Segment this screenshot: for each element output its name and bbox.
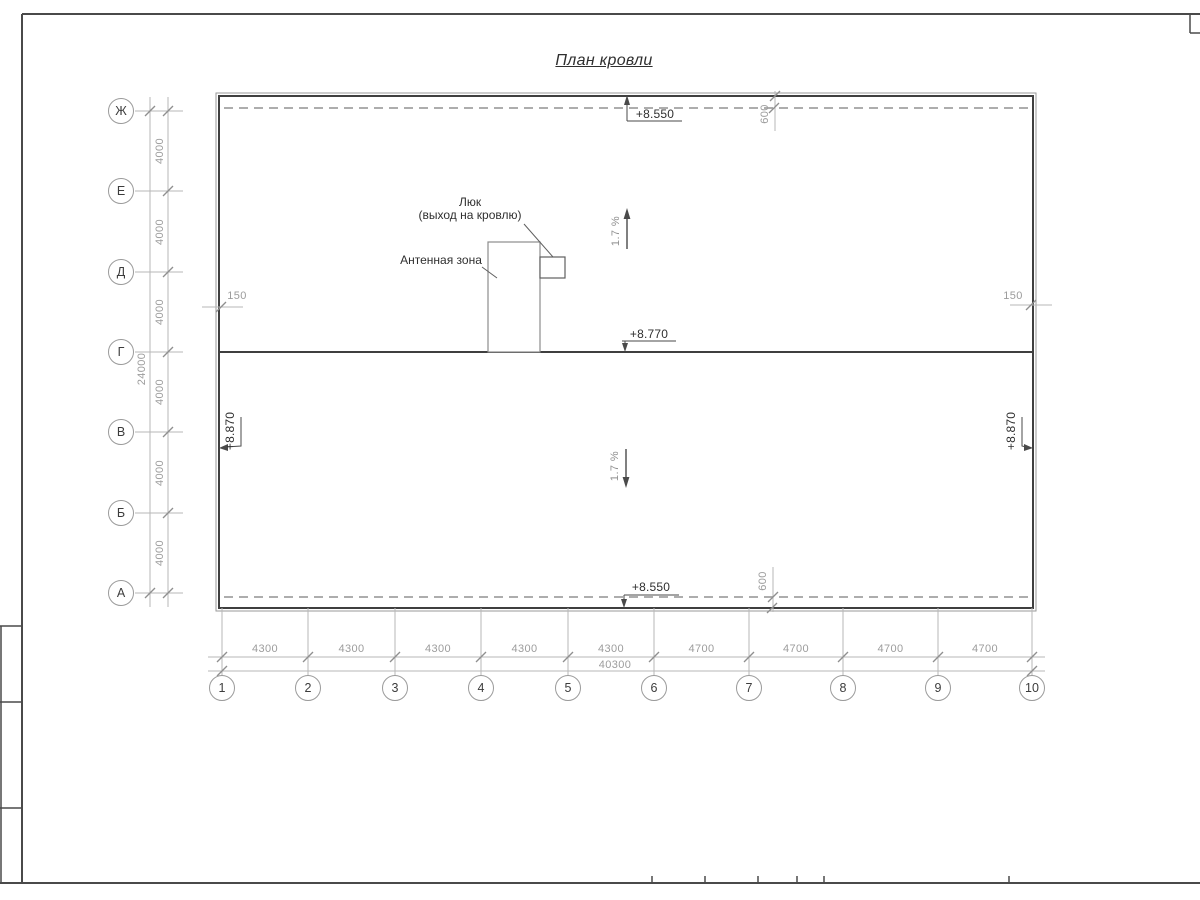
elevation-ridge: +8.770 (630, 327, 668, 341)
slope-upper-label: 1.7 % (610, 216, 622, 246)
dim-bottom-segment: 4300 (511, 643, 537, 655)
antenna-zone-box (488, 242, 540, 352)
elevation-bottom: +8.550 (632, 580, 670, 594)
dim-parapet-left: 150 (227, 290, 247, 302)
dim-left-segment: 4000 (154, 299, 166, 325)
dim-eaves-top: 600 (759, 104, 771, 124)
dim-left-segment: 4000 (154, 218, 166, 244)
axis-bubble-row-Ж: Ж (108, 98, 134, 124)
axis-bubble-col-9: 9 (925, 675, 951, 701)
dim-bottom-segment: 4700 (688, 643, 714, 655)
drawing-lines (0, 0, 1200, 900)
dim-bottom-segment: 4300 (598, 643, 624, 655)
elevation-left: +8.870 (223, 412, 237, 450)
axis-bubble-col-3: 3 (382, 675, 408, 701)
axis-bubble-row-Е: Е (108, 178, 134, 204)
dim-parapet-right: 150 (1003, 290, 1023, 302)
elevation-top: +8.550 (636, 107, 674, 121)
axis-bubble-col-6: 6 (641, 675, 667, 701)
axis-bubble-col-2: 2 (295, 675, 321, 701)
dim-bottom-segment: 4700 (972, 643, 998, 655)
dim-bottom-segment: 4700 (877, 643, 903, 655)
dim-left-segment: 4000 (154, 138, 166, 164)
axis-bubble-col-1: 1 (209, 675, 235, 701)
axis-bubble-row-Г: Г (108, 339, 134, 365)
dim-bottom-segment: 4300 (338, 643, 364, 655)
roof-hatch-box (540, 257, 565, 278)
dim-eaves-bottom: 600 (757, 571, 769, 591)
antenna-label: Антенная зона (400, 253, 482, 267)
dim-left-segment: 4000 (154, 379, 166, 405)
dim-bottom-segment: 4300 (252, 643, 278, 655)
dim-bottom-total: 40300 (599, 659, 632, 671)
axis-bubble-row-А: А (108, 580, 134, 606)
dim-bottom-segment: 4300 (425, 643, 451, 655)
dim-left-segment: 4000 (154, 540, 166, 566)
slope-lower-label: 1.7 % (609, 451, 621, 481)
roof-outline (216, 93, 1036, 611)
axis-bubble-col-10: 10 (1019, 675, 1045, 701)
drawing-title: План кровли (555, 52, 652, 70)
drawing-sheet: План кровли Люк (выход на кровлю) Антенн… (0, 0, 1200, 900)
axis-bubble-row-В: В (108, 419, 134, 445)
axis-bubble-col-4: 4 (468, 675, 494, 701)
axis-bubble-col-8: 8 (830, 675, 856, 701)
dim-left-segment: 4000 (154, 459, 166, 485)
axis-bubble-col-5: 5 (555, 675, 581, 701)
dim-left-total: 24000 (136, 353, 148, 386)
axis-bubble-col-7: 7 (736, 675, 762, 701)
dim-bottom-segment: 4700 (783, 643, 809, 655)
axis-bubble-row-Д: Д (108, 259, 134, 285)
elevation-right: +8.870 (1004, 412, 1018, 450)
hatch-label: Люк (выход на кровлю) (419, 196, 522, 222)
hatch-label-line2: (выход на кровлю) (419, 209, 522, 222)
axis-bubble-row-Б: Б (108, 500, 134, 526)
